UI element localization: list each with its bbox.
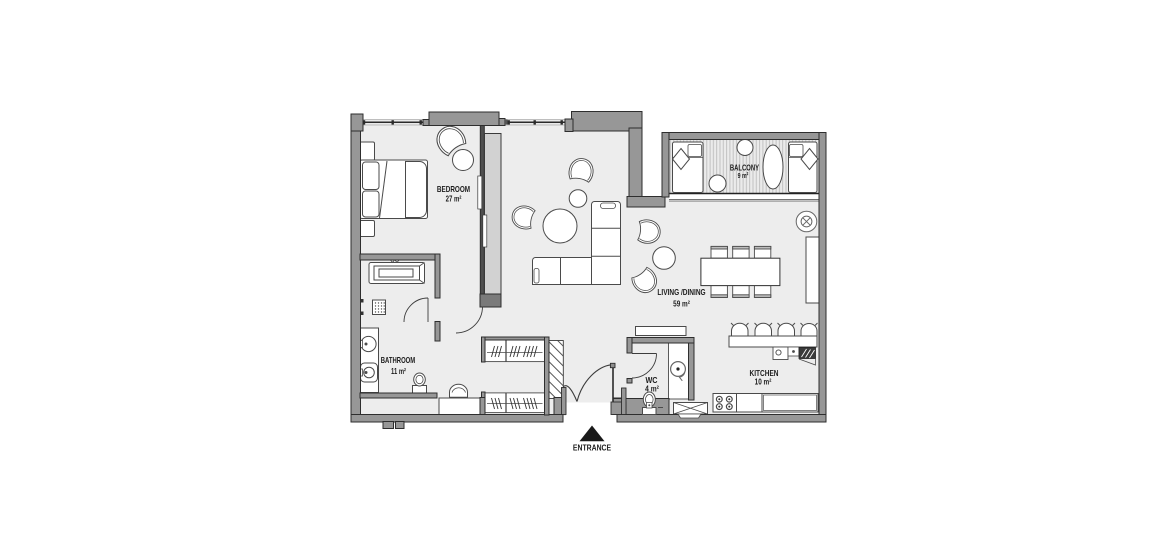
svg-text:4 m²: 4 m² xyxy=(645,384,659,394)
svg-text:11 m²: 11 m² xyxy=(391,368,406,376)
svg-text:27 m²: 27 m² xyxy=(446,195,462,204)
svg-text:LIVING /DINING: LIVING /DINING xyxy=(657,287,705,297)
svg-text:9 m²: 9 m² xyxy=(738,172,749,180)
svg-text:10 m²: 10 m² xyxy=(755,377,772,387)
svg-text:BATHROOM: BATHROOM xyxy=(381,355,415,365)
svg-text:ENTRANCE: ENTRANCE xyxy=(573,443,611,453)
svg-text:BEDROOM: BEDROOM xyxy=(437,184,470,194)
svg-text:59 m²: 59 m² xyxy=(673,299,690,309)
